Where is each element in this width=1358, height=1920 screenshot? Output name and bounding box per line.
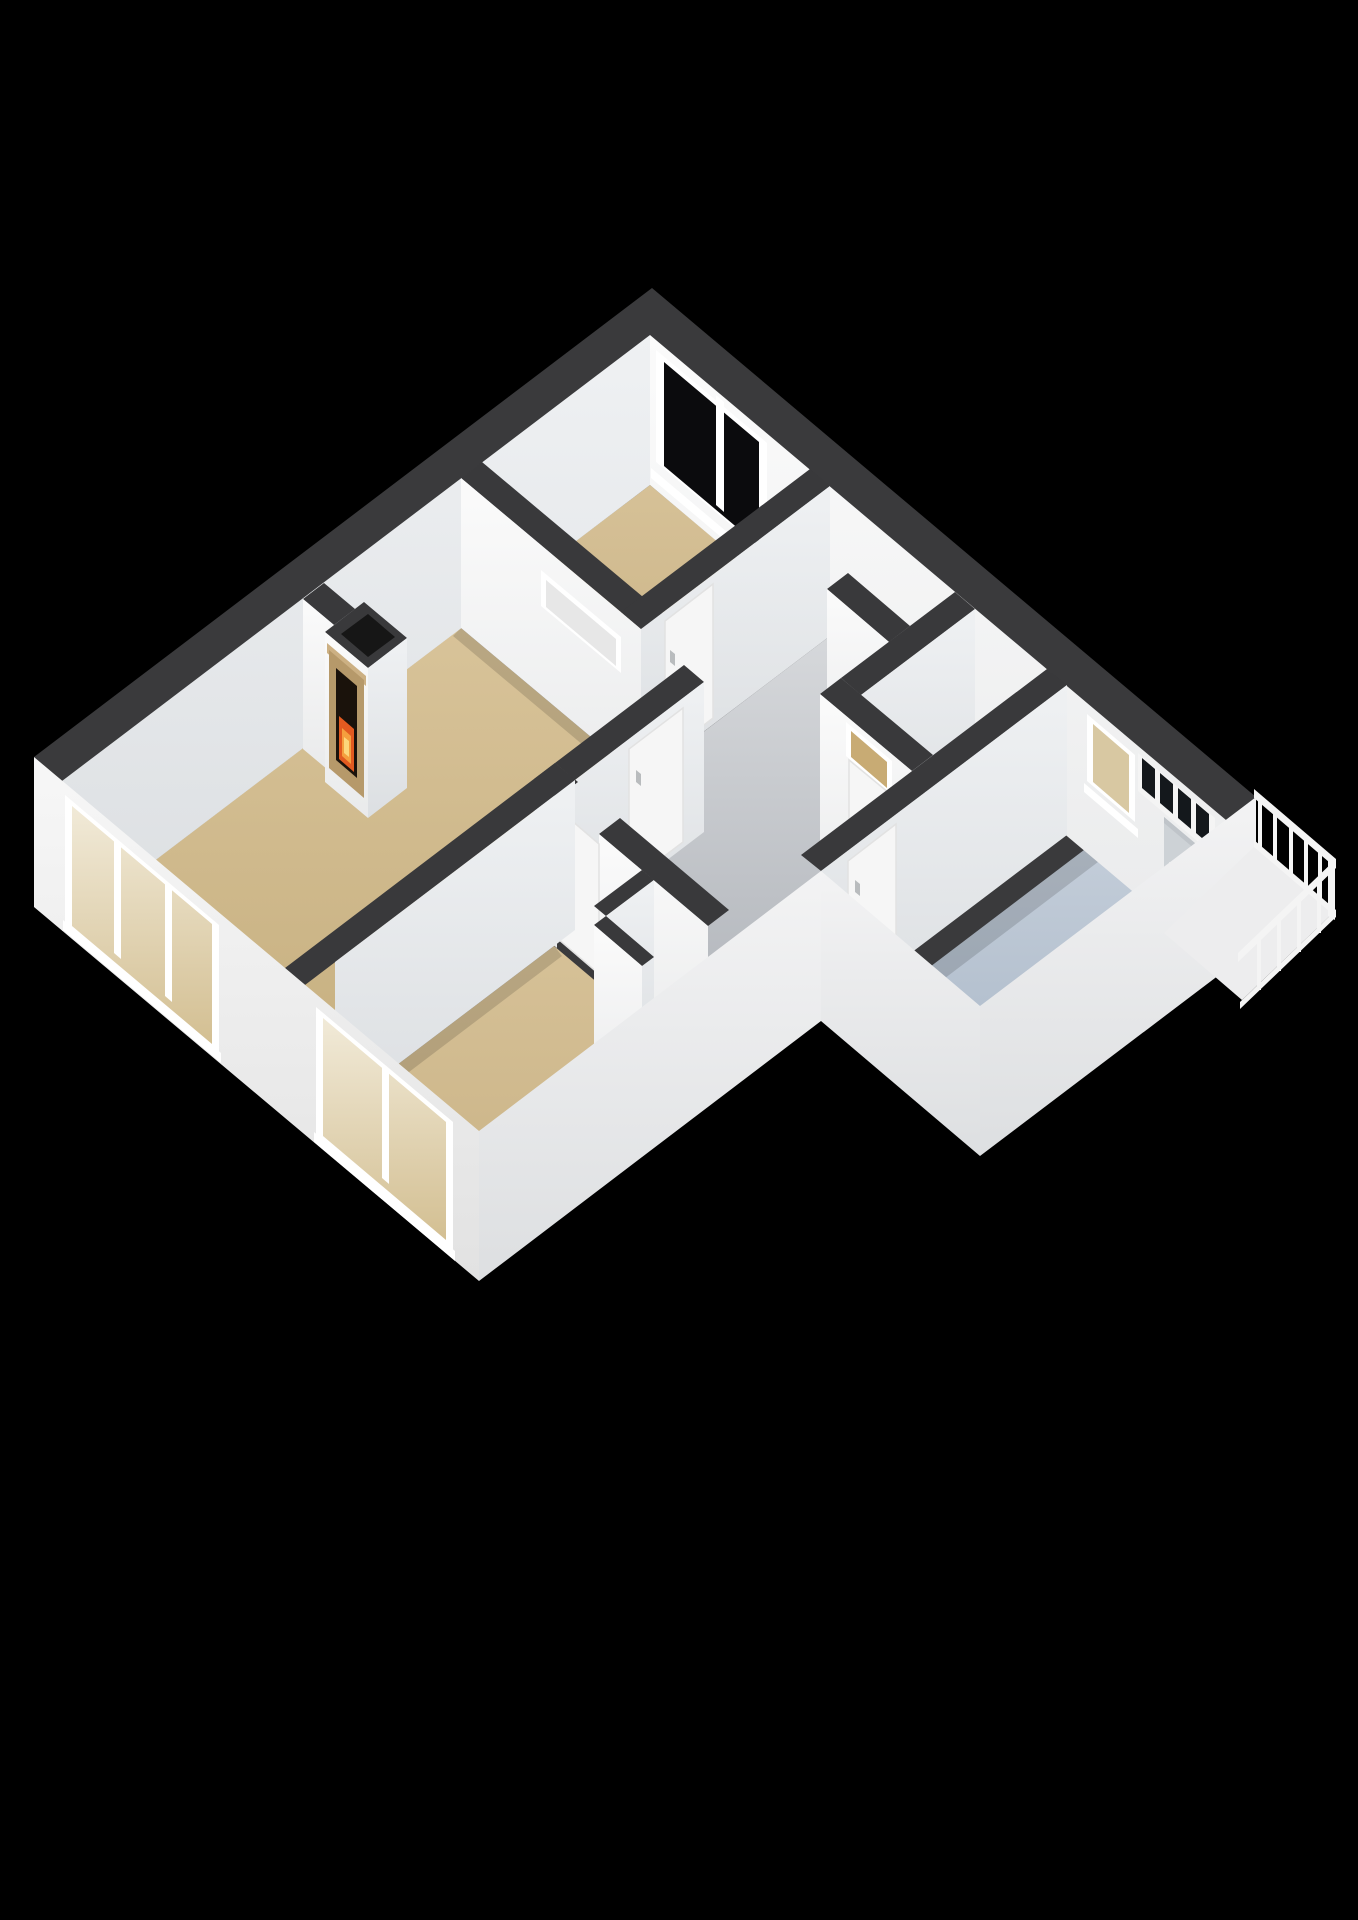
floorplan-canvas [0, 0, 1358, 1920]
window-mullion [382, 1064, 389, 1184]
window-mullion [716, 395, 724, 512]
window-mullion [114, 839, 121, 959]
window-mullion [165, 882, 172, 1002]
floorplan-svg [0, 0, 1358, 1920]
chimney-side-face [368, 638, 407, 818]
